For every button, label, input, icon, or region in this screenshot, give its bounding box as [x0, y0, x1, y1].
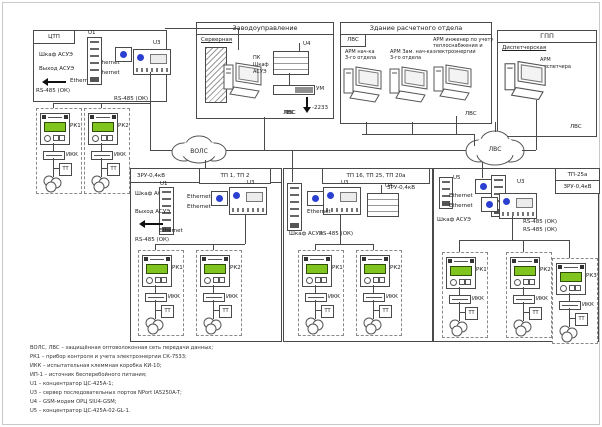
dispatcher-room-label: Диспетчерская — [502, 45, 546, 51]
power-meter — [446, 257, 476, 289]
legend-line: ИП-1 – источник бесперебойного питания; — [30, 371, 213, 380]
connector-line — [245, 214, 246, 244]
box-zavod-title: Заводоуправление — [197, 23, 333, 35]
legend: ВОЛС, ЛВС – защищённая оптоволоконная се… — [30, 344, 213, 416]
u4-label: U4 — [385, 183, 393, 189]
power-meter — [510, 257, 540, 289]
lvs-label: ЛВС — [465, 111, 477, 117]
ethernet-label: Ethernet — [449, 203, 473, 209]
amplifier-um — [273, 85, 315, 95]
diagram-page: ЦТП Шкаф АСУЭ Выход АСУЭ Ethernet Ethern… — [0, 0, 602, 427]
metering-cell: РК2 ИКК ТТ — [356, 250, 402, 336]
connector-line — [459, 240, 569, 241]
box-ctp-tab: ЦТП — [33, 30, 75, 44]
computer-icon — [433, 61, 481, 103]
u3-label: U3 — [517, 179, 525, 185]
meter-label: РК2 — [390, 265, 401, 271]
power-meter — [556, 263, 586, 295]
meter-lcd — [204, 264, 226, 274]
meter-label: РК2 — [118, 123, 129, 129]
serial-server-u3 — [499, 193, 537, 219]
box-raschet: Здание расчетного отдела ЛВС АРМ нач-ка … — [340, 22, 492, 124]
meter-label: РК3 — [586, 273, 597, 279]
rs485-label: RS-485 (ОК) — [523, 227, 557, 233]
metering-cell: РК1 ИКК ТТ — [442, 252, 488, 338]
metering-cell: РК1 ИКК ТТ — [138, 250, 184, 336]
motor-icon — [203, 317, 223, 335]
power-meter — [142, 255, 172, 287]
test-terminal-box — [449, 295, 471, 304]
modem-antenna — [299, 43, 300, 51]
meter-lcd — [306, 264, 328, 274]
meter-label: РК1 — [476, 267, 487, 273]
cabinet-label: Шкаф АСУЭ — [39, 52, 73, 58]
meter-label: РК1 — [70, 123, 81, 129]
connector-line — [315, 244, 373, 245]
ikk-label: ИКК — [472, 296, 484, 302]
meter-label: РК1 — [172, 265, 183, 271]
u3-label: U3 — [341, 180, 349, 186]
ikk-label: ИКК — [168, 294, 180, 300]
meter-label: РК2 — [540, 267, 551, 273]
ikk-label: ИКК — [328, 294, 340, 300]
ikk-label: ИКК — [386, 294, 398, 300]
meter-label: РК1 — [332, 265, 343, 271]
ethernet-out-arrow — [141, 223, 163, 225]
pc-label: АСУЭ — [253, 69, 266, 75]
test-terminal-box — [145, 293, 167, 302]
ethernet-label: Ethernet — [159, 228, 183, 234]
arm3-label: электроэнергии — [433, 49, 476, 55]
ikk-label: ИКК — [114, 152, 126, 158]
connector-line — [150, 100, 151, 150]
u4-label: U4 — [303, 41, 311, 47]
arm1-label: 3-го отдела — [345, 55, 376, 61]
connector-line — [155, 244, 245, 245]
power-meter — [40, 113, 70, 145]
um-label: УМ — [316, 86, 324, 92]
test-terminal-box — [559, 301, 581, 310]
box-tp16-title: ТП 16, ТП 25, ТП 20а — [322, 168, 430, 184]
gsm-modem-u4 — [367, 193, 399, 217]
connector-line — [474, 134, 475, 146]
meter-lcd — [364, 264, 386, 274]
motor-icon — [145, 317, 165, 335]
box-gpp-title: ГПП — [498, 31, 596, 43]
test-terminal-box — [43, 151, 65, 160]
meter-lcd — [146, 264, 168, 274]
connector-line — [340, 214, 341, 244]
connector-line — [412, 122, 413, 134]
connector-line — [456, 116, 457, 134]
rs485-label: RS-485 (ОК) — [523, 219, 557, 225]
connector-line — [238, 28, 239, 50]
connector-line — [264, 117, 265, 150]
concentrator-u1 — [287, 183, 302, 231]
meter-lcd — [560, 272, 582, 282]
computer-icon — [343, 63, 391, 105]
ikk-label: ИКК — [582, 302, 594, 308]
ikk-label: ИКК — [66, 152, 78, 158]
pc-label: Шкаф — [253, 62, 269, 68]
connector-line — [495, 122, 496, 132]
serial-server-u3 — [229, 187, 267, 215]
ethernet-out-arrow — [44, 81, 66, 83]
arm2-label: 3-го отдела — [390, 55, 421, 61]
rs485-label: RS-485 (ОК) — [135, 237, 169, 243]
test-terminal-box — [513, 295, 535, 304]
connector-line — [226, 150, 466, 151]
modem-antenna — [381, 185, 382, 193]
motor-icon — [559, 325, 579, 343]
connector-line — [362, 134, 474, 135]
lvs-label: ЛВС — [284, 110, 296, 116]
vols-cloud: ВОЛС — [170, 134, 228, 166]
motor-icon — [305, 317, 325, 335]
legend-line: U1 – концентратор ЦС-425А-1; — [30, 380, 213, 389]
meter-label: РК2 — [230, 265, 241, 271]
antenna-label: -2233 — [312, 105, 328, 111]
meter-lcd — [92, 122, 114, 132]
u3-label: U3 — [153, 40, 161, 46]
meter-lcd — [44, 122, 66, 132]
connector-line — [150, 150, 172, 151]
meter-lcd — [450, 266, 472, 276]
metering-cell: РК3 ИКК ТТ — [552, 258, 598, 344]
zru-label: ЗРУ-0,4кВ — [137, 173, 165, 179]
u3-label: U3 — [247, 180, 255, 186]
test-terminal-box — [363, 293, 385, 302]
legend-line: U5 – концентратор ЦС-425А-02-GL-1. — [30, 407, 213, 416]
connector-line — [512, 216, 513, 240]
concentrator-u1 — [87, 37, 102, 85]
output-label: Выход АСУЭ — [39, 66, 74, 72]
cabinet-label: Шкаф АСУЭ — [437, 217, 471, 223]
svg-text:ЛВС: ЛВС — [489, 146, 502, 153]
box-raschet-lvs-tab: ЛВС — [340, 34, 366, 47]
connector-line — [482, 162, 483, 178]
serial-server-u3 — [133, 49, 171, 75]
antenna-arrow — [306, 97, 308, 111]
metering-cell: РК2 ИКК ТТ — [506, 252, 552, 338]
computer-icon — [389, 63, 437, 105]
ikk-label: ИКК — [536, 296, 548, 302]
u1-label: U1 — [88, 30, 96, 36]
box-tp12-title: ТП 1, ТП 2 — [199, 168, 271, 184]
svg-text:ВОЛС: ВОЛС — [190, 148, 208, 155]
rs485-label: RS-485 (ОК) — [114, 96, 148, 102]
connector-line — [292, 150, 293, 182]
connector-line — [366, 122, 367, 134]
ethernet-label: Ethernet — [307, 209, 331, 215]
legend-line: U3 – сервер последовательных портов NPor… — [30, 389, 213, 398]
meter-lcd — [514, 266, 536, 276]
computer-icon — [504, 57, 556, 103]
gsm-modem-u4 — [273, 51, 309, 75]
ethernet-label: Ethernet — [187, 194, 211, 200]
media-converter — [481, 197, 498, 212]
motor-icon — [449, 319, 469, 337]
legend-line: U4 – GSM-модем ОРЦ SIU4-GSM; — [30, 398, 213, 407]
connector-line — [165, 28, 238, 29]
motor-icon — [91, 175, 111, 193]
media-converter — [307, 191, 324, 206]
power-meter — [360, 255, 390, 287]
connector-line — [150, 72, 151, 103]
motor-icon — [363, 317, 383, 335]
power-meter — [88, 113, 118, 145]
metering-cell: РК1 ИКК ТТ — [36, 108, 82, 194]
power-meter — [200, 255, 230, 287]
legend-line: ИКК – испытательная клеммная коробка КИ-… — [30, 362, 213, 371]
cabinet-label: Шкаф АСУЭ — [289, 231, 323, 237]
pc-label: ПК — [253, 55, 260, 61]
legend-line: РК1 – прибор контроля и учета электроэне… — [30, 353, 213, 362]
output-label: Выход АСУЭ — [135, 209, 170, 215]
metering-cell: РК1 ИКК ТТ — [298, 250, 344, 336]
media-converter — [211, 191, 228, 206]
ethernet-label: Ethernet — [449, 193, 473, 199]
ikk-label: ИКК — [226, 294, 238, 300]
motor-icon — [513, 319, 533, 337]
legend-line: ВОЛС, ЛВС – защищённая оптоволоконная се… — [30, 344, 213, 353]
test-terminal-box — [305, 293, 327, 302]
server-room-label: Серверная — [201, 37, 232, 43]
metering-cell: РК2 ИКК ТТ — [84, 108, 130, 194]
u5-label: U5 — [453, 175, 461, 181]
metering-cell: РК2 ИКК ТТ — [196, 250, 242, 336]
connector-line — [522, 150, 536, 151]
media-converter — [475, 179, 492, 194]
box-zavod: Заводоуправление Серверная ПК Шкаф АСУЭ … — [196, 22, 334, 119]
test-terminal-box — [91, 151, 113, 160]
media-converter — [115, 47, 132, 62]
power-meter — [302, 255, 332, 287]
rs485-label: RS-485 (ОК) — [319, 231, 353, 237]
connector-line — [205, 160, 206, 168]
test-terminal-box — [203, 293, 225, 302]
motor-icon — [43, 175, 63, 193]
lvs-label: ЛВС — [570, 124, 582, 130]
ethernet-label: Ethernet — [187, 204, 211, 210]
box-gpp: ГПП Диспетчерская АРМ диспетчера ЛВС — [497, 30, 597, 137]
rs485-label: RS-485 (ОК) — [36, 88, 70, 94]
connector-line — [536, 100, 537, 150]
zru-label: ЗРУ-0,4кВ — [555, 180, 600, 194]
connector-line — [289, 73, 290, 85]
